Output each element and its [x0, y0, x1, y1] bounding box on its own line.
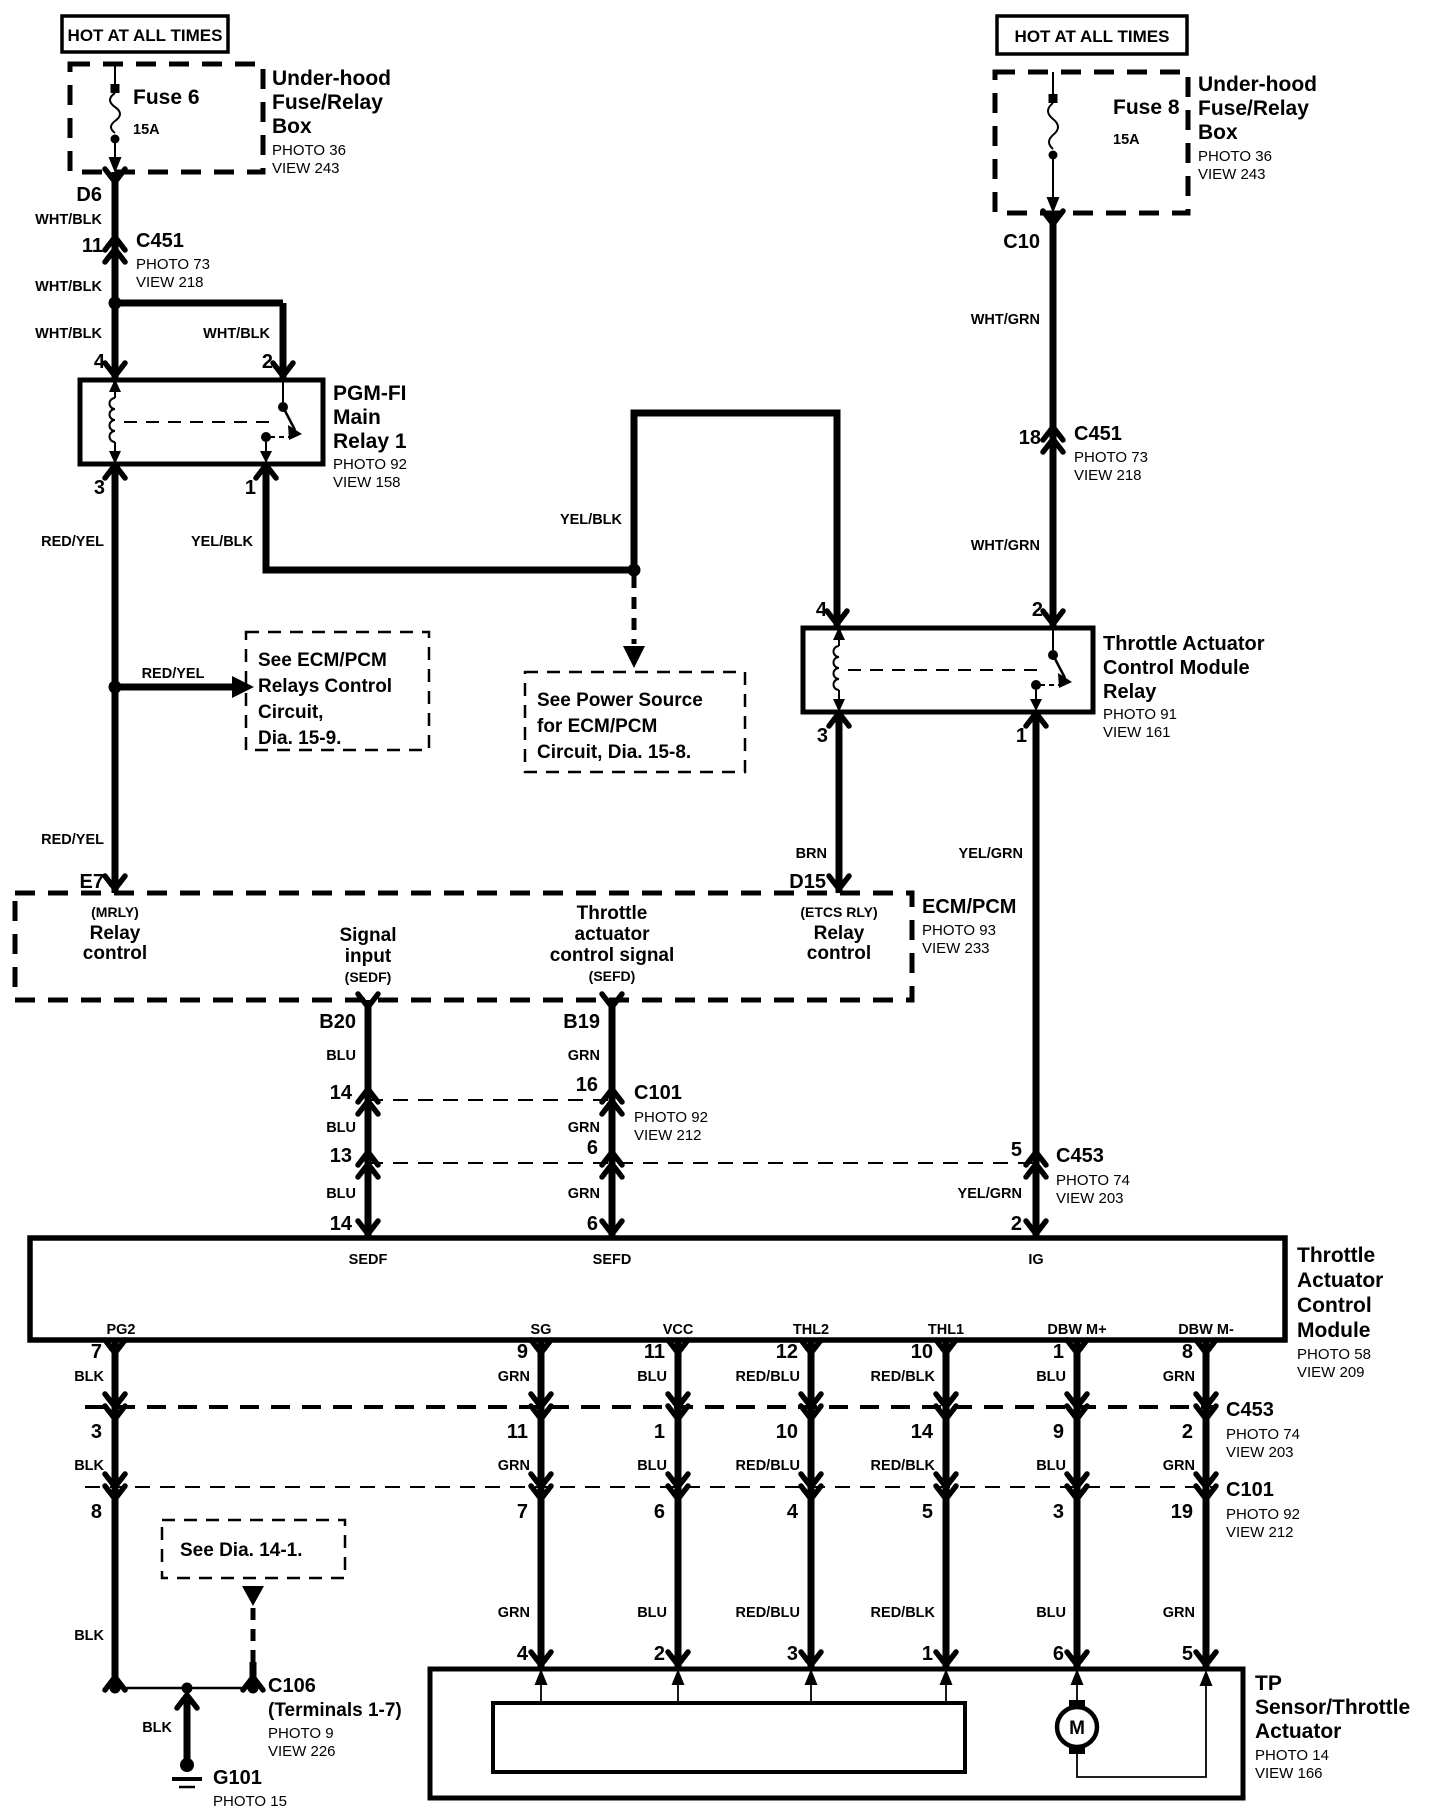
wire-color-label: BLU [326, 1048, 356, 1064]
module-port-vcc: VCC [663, 1322, 694, 1338]
fuse6-label: Fuse 6 [133, 86, 200, 109]
wire-color-label: BLU [1036, 1605, 1066, 1621]
relay1-pin-1: 1 [245, 477, 256, 499]
ecm-etcs-control: control [807, 943, 871, 964]
relay1-name-3: Relay 1 [333, 430, 407, 453]
ecm-throttle: Throttle [577, 903, 648, 924]
wire-color-label: RED/BLU [736, 1458, 800, 1474]
pin-number: 4 [787, 1501, 799, 1523]
c101-mid-view: VIEW 212 [634, 1127, 702, 1144]
wire-color-label: RED/YEL [41, 832, 104, 848]
relay2-name-2: Control Module [1103, 657, 1250, 679]
tp-name-3: Actuator [1255, 1720, 1341, 1743]
connector-c451-right: C451 [1074, 423, 1122, 445]
pin-number: 7 [517, 1501, 528, 1523]
hot-at-all-times-left: HOT AT ALL TIMES [62, 16, 228, 52]
pin-number: 11 [644, 1341, 665, 1363]
fusebox-right-outline [995, 72, 1188, 213]
pin-number: 3 [91, 1421, 102, 1443]
c101-pin-16: 16 [576, 1074, 598, 1096]
ecm-module-link: B20 B19 BLU GRN 14 16 C101 PHOTO 92 VIEW… [319, 994, 1130, 1238]
module-port-sefd: SEFD [593, 1252, 632, 1268]
wire-color-label: GRN [1163, 1605, 1195, 1621]
wire-color-label: BLU [637, 1605, 667, 1621]
pin-number: 9 [1053, 1421, 1064, 1443]
pin-c10: C10 [1003, 231, 1040, 253]
c101-pin-14: 14 [330, 1082, 353, 1104]
relay1-view: VIEW 158 [333, 474, 401, 491]
ecm-photo: PHOTO 93 [922, 922, 996, 939]
fuse8-label: Fuse 8 [1113, 96, 1180, 119]
pin-number: 1 [922, 1643, 933, 1665]
c101-row-photo: PHOTO 92 [1226, 1506, 1300, 1523]
module-port-pg2: PG2 [106, 1322, 135, 1338]
connector-c101-row: C101 [1226, 1479, 1274, 1501]
c453-row-view: VIEW 203 [1226, 1444, 1294, 1461]
see-note-line: See Power Source [537, 690, 703, 711]
c106-terminals: (Terminals 1-7) [268, 1700, 402, 1721]
tp-sensor-throttle-actuator: M TP Sensor/Throttle Actuator PHOTO 14 V… [430, 1669, 1410, 1798]
relay1-name-1: PGM-FI [333, 382, 407, 405]
fusebox-right-name-2: Fuse/Relay [1198, 97, 1309, 120]
fusebox-right-name-1: Under-hood [1198, 73, 1317, 96]
module-port-sedf: SEDF [349, 1252, 388, 1268]
tp-sensor-inner-box [493, 1703, 965, 1772]
wire-color-label: BLU [326, 1120, 356, 1136]
pin-number: 3 [1053, 1501, 1064, 1523]
ecm-mrly-relay: Relay [90, 923, 141, 944]
wire-color-label: BRN [796, 846, 827, 862]
pin-number: 2 [654, 1643, 665, 1665]
ecm-sedf: (SEDF) [345, 969, 392, 985]
c451-pin-18: 18 [1019, 427, 1041, 449]
connector-c453-mid: C453 [1056, 1145, 1104, 1167]
c451-right-photo: PHOTO 73 [1074, 449, 1148, 466]
tp-name-2: Sensor/Throttle [1255, 1696, 1410, 1719]
c451-right-view: VIEW 218 [1074, 467, 1142, 484]
fuse-top-contact [1049, 94, 1058, 103]
fuse-top-contact [111, 84, 120, 93]
module-port-thl1: THL1 [928, 1322, 964, 1338]
hot-label-right: HOT AT ALL TIMES [1015, 27, 1170, 46]
see-note-line: Dia. 15-9. [258, 728, 341, 749]
wire-color-label: RED/BLK [871, 1605, 936, 1621]
relay1-pin-4: 4 [94, 351, 106, 373]
pin-number: 1 [654, 1421, 665, 1443]
pin-number: 11 [507, 1421, 528, 1443]
ecm-name: ECM/PCM [922, 896, 1016, 918]
wire-color-label: WHT/BLK [203, 326, 270, 342]
module-port-sg: SG [531, 1322, 552, 1338]
relay1-pin-3: 3 [94, 477, 105, 499]
wire-color-label: BLU [637, 1369, 667, 1385]
fusebox-right-view: VIEW 243 [1198, 166, 1266, 183]
wire-color-label: BLK [74, 1628, 104, 1644]
wire-color-label: BLU [1036, 1458, 1066, 1474]
c451-left-photo: PHOTO 73 [136, 256, 210, 273]
wire-color-label: GRN [498, 1605, 530, 1621]
ground-icon [180, 1758, 194, 1772]
grid-col-vcc: 11 BLU 1 BLU 6 BLU 2 [637, 1340, 688, 1669]
fusebox-left-view: VIEW 243 [272, 160, 340, 177]
ecm-input: input [345, 946, 392, 967]
wire-color-label: BLK [74, 1458, 104, 1474]
module-port-dbw-minus: DBW M- [1178, 1322, 1234, 1338]
pin-number: 1 [1053, 1341, 1064, 1363]
c451-pin-11: 11 [82, 235, 103, 257]
relay2-pin-1: 1 [1016, 725, 1027, 747]
ecm-pcm-outline [15, 893, 912, 1000]
wire-color-label: RED/BLU [736, 1605, 800, 1621]
pin-number: 12 [776, 1341, 798, 1363]
fuse6-rating: 15A [133, 122, 160, 138]
pin-number: 9 [517, 1341, 528, 1363]
ecm-mrly-control: control [83, 943, 147, 964]
wire-color-label: GRN [498, 1369, 530, 1385]
ground-g101: G101 [213, 1767, 262, 1789]
ecm-pcm: (MRLY) Relay control Signal input (SEDF)… [15, 876, 1016, 1000]
wire-color-label: GRN [498, 1458, 530, 1474]
wire-color-label: RED/YEL [41, 534, 104, 550]
grid-col-thl1: 10 RED/BLK 14 RED/BLK 5 RED/BLK 1 [871, 1340, 956, 1669]
relay2-photo: PHOTO 91 [1103, 706, 1177, 723]
junction-dot [109, 297, 122, 310]
red-yel-branch: RED/YEL YEL/BLK RED/YEL See ECM/PCM Rela… [41, 464, 429, 893]
wire-color-label: GRN [1163, 1369, 1195, 1385]
wire-color-label: BLK [142, 1720, 172, 1736]
arrow-down-icon [623, 646, 645, 668]
tp-name-1: TP [1255, 1672, 1282, 1695]
pin-number: 19 [1171, 1501, 1193, 1523]
wire-color-label: RED/BLK [871, 1458, 936, 1474]
pin-e7: E7 [80, 871, 104, 893]
wire-color-label: GRN [1163, 1458, 1195, 1474]
module-name-2: Actuator [1297, 1269, 1383, 1292]
see-dia-14-1: See Dia. 14-1. [162, 1520, 345, 1690]
underhood-fusebox-left: Fuse 6 15A Under-hood Fuse/Relay Box PHO… [70, 64, 391, 177]
module-photo: PHOTO 58 [1297, 1346, 1371, 1363]
wire-color-label: RED/BLK [871, 1369, 936, 1385]
hot-label-left: HOT AT ALL TIMES [68, 26, 223, 45]
connector-c453-row: C453 [1226, 1399, 1274, 1421]
fusebox-left-name-2: Fuse/Relay [272, 91, 383, 114]
module-name-1: Throttle [1297, 1244, 1375, 1267]
arrow-down-icon [242, 1586, 264, 1606]
c106-g101-ground: C106 (Terminals 1-7) PHOTO 9 VIEW 226 BL… [105, 1675, 402, 1810]
wire-color-label: BLU [637, 1458, 667, 1474]
connector-c451-left: C451 [136, 230, 184, 252]
wire-color-label: YEL/BLK [191, 534, 254, 550]
c106-view: VIEW 226 [268, 1743, 336, 1760]
fuse-element-icon [110, 93, 120, 133]
hot-at-all-times-right: HOT AT ALL TIMES [997, 16, 1187, 54]
fuse8-rating: 15A [1113, 132, 1140, 148]
c451-left-view: VIEW 218 [136, 274, 204, 291]
grid-col-thl2: 12 RED/BLU 10 RED/BLU 4 RED/BLU 3 [736, 1340, 821, 1669]
ecm-signal: Signal [339, 925, 396, 946]
grid-col-dbw-minus: 8 GRN 2 GRN 19 GRN 5 [1163, 1340, 1216, 1669]
wire-color-label: RED/YEL [142, 666, 205, 682]
pin-d6: D6 [76, 184, 102, 206]
grid-col-sg: 9 GRN 11 GRN 7 GRN 4 [498, 1340, 551, 1669]
pin-b19: B19 [563, 1011, 600, 1033]
wire-color-label: BLU [1036, 1369, 1066, 1385]
wire-color-label: WHT/GRN [971, 538, 1040, 554]
relay1-photo: PHOTO 92 [333, 456, 407, 473]
connector-c106: C106 [268, 1675, 316, 1697]
module-pin-2: 2 [1011, 1213, 1022, 1235]
pin-number: 8 [91, 1501, 102, 1523]
pin-number: 3 [787, 1643, 798, 1665]
wire-color-label: YEL/GRN [959, 846, 1023, 862]
pin-number: 8 [1182, 1341, 1193, 1363]
relay2-name-1: Throttle Actuator [1103, 633, 1265, 655]
see-note-line: See Dia. 14-1. [180, 1540, 303, 1561]
relay2-pin-3: 3 [817, 725, 828, 747]
pin-number: 5 [1182, 1643, 1193, 1665]
module-pin-6: 6 [587, 1213, 598, 1235]
pin-number: 10 [911, 1341, 933, 1363]
tp-box-outline [430, 1669, 1243, 1798]
tp-photo: PHOTO 14 [1255, 1747, 1329, 1764]
relay2-name-3: Relay [1103, 681, 1157, 703]
c453-row-photo: PHOTO 74 [1226, 1426, 1300, 1443]
motor-letter: M [1069, 1718, 1085, 1739]
connector-c101-mid: C101 [634, 1082, 682, 1104]
wire-color-label: WHT/BLK [35, 279, 102, 295]
module-port-thl2: THL2 [793, 1322, 829, 1338]
wiring-diagram: HOT AT ALL TIMES Fuse 6 15A Under-hood F… [0, 0, 1440, 1814]
ecm-etcs-relay: Relay [814, 923, 865, 944]
wire-color-label: WHT/BLK [35, 212, 102, 228]
fusebox-left-name-3: Box [272, 115, 312, 138]
right-feed-wire: C10 WHT/GRN 18 C451 PHOTO 73 VIEW 218 WH… [816, 211, 1148, 628]
c453-mid-photo: PHOTO 74 [1056, 1172, 1130, 1189]
c453-pin-5: 5 [1011, 1139, 1022, 1161]
fusebox-left-name-1: Under-hood [272, 67, 391, 90]
c453-pin-13: 13 [330, 1145, 352, 1167]
see-note-line: Relays Control [258, 676, 392, 697]
underhood-fusebox-right: Fuse 8 15A Under-hood Fuse/Relay Box PHO… [995, 72, 1317, 213]
fusebox-right-photo: PHOTO 36 [1198, 148, 1272, 165]
module-pin-14: 14 [330, 1213, 353, 1235]
g101-photo: PHOTO 15 [213, 1793, 287, 1810]
see-note-line: Circuit, Dia. 15-8. [537, 742, 691, 763]
module-port-dbw-plus: DBW M+ [1047, 1322, 1106, 1338]
pin-number: 5 [922, 1501, 933, 1523]
module-name-4: Module [1297, 1319, 1371, 1342]
ecm-actuator: actuator [575, 924, 651, 945]
pin-d15: D15 [789, 871, 826, 893]
c453-pin-6: 6 [587, 1137, 598, 1159]
left-feed-wires: D6 WHT/BLK 11 C451 PHOTO 73 VIEW 218 WHT… [35, 169, 293, 380]
pin-number: 6 [654, 1501, 665, 1523]
wire-color-label: BLU [326, 1186, 356, 1202]
diagram-canvas: HOT AT ALL TIMES Fuse 6 15A Under-hood F… [0, 0, 1440, 1814]
fusebox-left-photo: PHOTO 36 [272, 142, 346, 159]
relay-coil-icon [833, 627, 845, 712]
relay2-view: VIEW 161 [1103, 724, 1171, 741]
junction-dot [628, 564, 641, 577]
c106-photo: PHOTO 9 [268, 1725, 334, 1742]
throttle-actuator-control-module: SEDF SEFD IG PG2 SG VCC THL2 THL1 DBW M+… [30, 1238, 1383, 1381]
wire-color-label: GRN [568, 1048, 600, 1064]
see-note-line: for ECM/PCM [537, 716, 657, 737]
relay1-pin-2: 2 [262, 351, 273, 373]
pin-number: 10 [776, 1421, 798, 1443]
pin-number: 7 [91, 1341, 102, 1363]
motor-terminal [1069, 1747, 1085, 1754]
ecm-view: VIEW 233 [922, 940, 990, 957]
fuse-element-icon [1048, 103, 1058, 149]
module-name-3: Control [1297, 1294, 1372, 1317]
fusebox-right-name-3: Box [1198, 121, 1238, 144]
wire-color-label: YEL/BLK [560, 512, 623, 528]
relay-coil-icon [109, 379, 121, 464]
fusebox-left-outline [70, 64, 263, 172]
wire-color-label: BLK [74, 1369, 104, 1385]
ecm-etcs-rly: (ETCS RLY) [800, 904, 877, 920]
ecm-mrly: (MRLY) [91, 904, 139, 920]
module-view: VIEW 209 [1297, 1364, 1365, 1381]
c101-row-view: VIEW 212 [1226, 1524, 1294, 1541]
grid-col-dbw-plus: 1 BLU 9 BLU 3 BLU 6 [1036, 1340, 1087, 1669]
tp-view: VIEW 166 [1255, 1765, 1323, 1782]
arrow-right-icon [232, 676, 254, 698]
pin-b20: B20 [319, 1011, 356, 1033]
pin-number: 4 [517, 1643, 529, 1665]
grid-col-pg2: 7 BLK 3 BLK 8 BLK [74, 1340, 125, 1688]
ecm-sefd: (SEFD) [589, 968, 636, 984]
module-port-ig: IG [1028, 1252, 1043, 1268]
c453-mid-view: VIEW 203 [1056, 1190, 1124, 1207]
see-note-line: See ECM/PCM [258, 650, 387, 671]
c101-mid-photo: PHOTO 92 [634, 1109, 708, 1126]
pin-grid: C453 PHOTO 74 VIEW 203 C101 PHOTO 92 VIE… [74, 1340, 1300, 1690]
wire-color-label: GRN [568, 1186, 600, 1202]
pgm-fi-main-relay-1: PGM-FI Main Relay 1 PHOTO 92 VIEW 158 3 … [80, 379, 407, 499]
wire-color-label: YEL/GRN [958, 1186, 1022, 1202]
relay1-name-2: Main [333, 406, 381, 429]
ecm-control-signal: control signal [550, 945, 675, 966]
wire-color-label: WHT/GRN [971, 312, 1040, 328]
wire-color-label: GRN [568, 1120, 600, 1136]
pin-number: 6 [1053, 1643, 1064, 1665]
see-note-line: Circuit, [258, 702, 323, 723]
wire-color-label: RED/BLU [736, 1369, 800, 1385]
wire-color-label: WHT/BLK [35, 326, 102, 342]
pin-number: 14 [911, 1421, 934, 1443]
pin-number: 2 [1182, 1421, 1193, 1443]
